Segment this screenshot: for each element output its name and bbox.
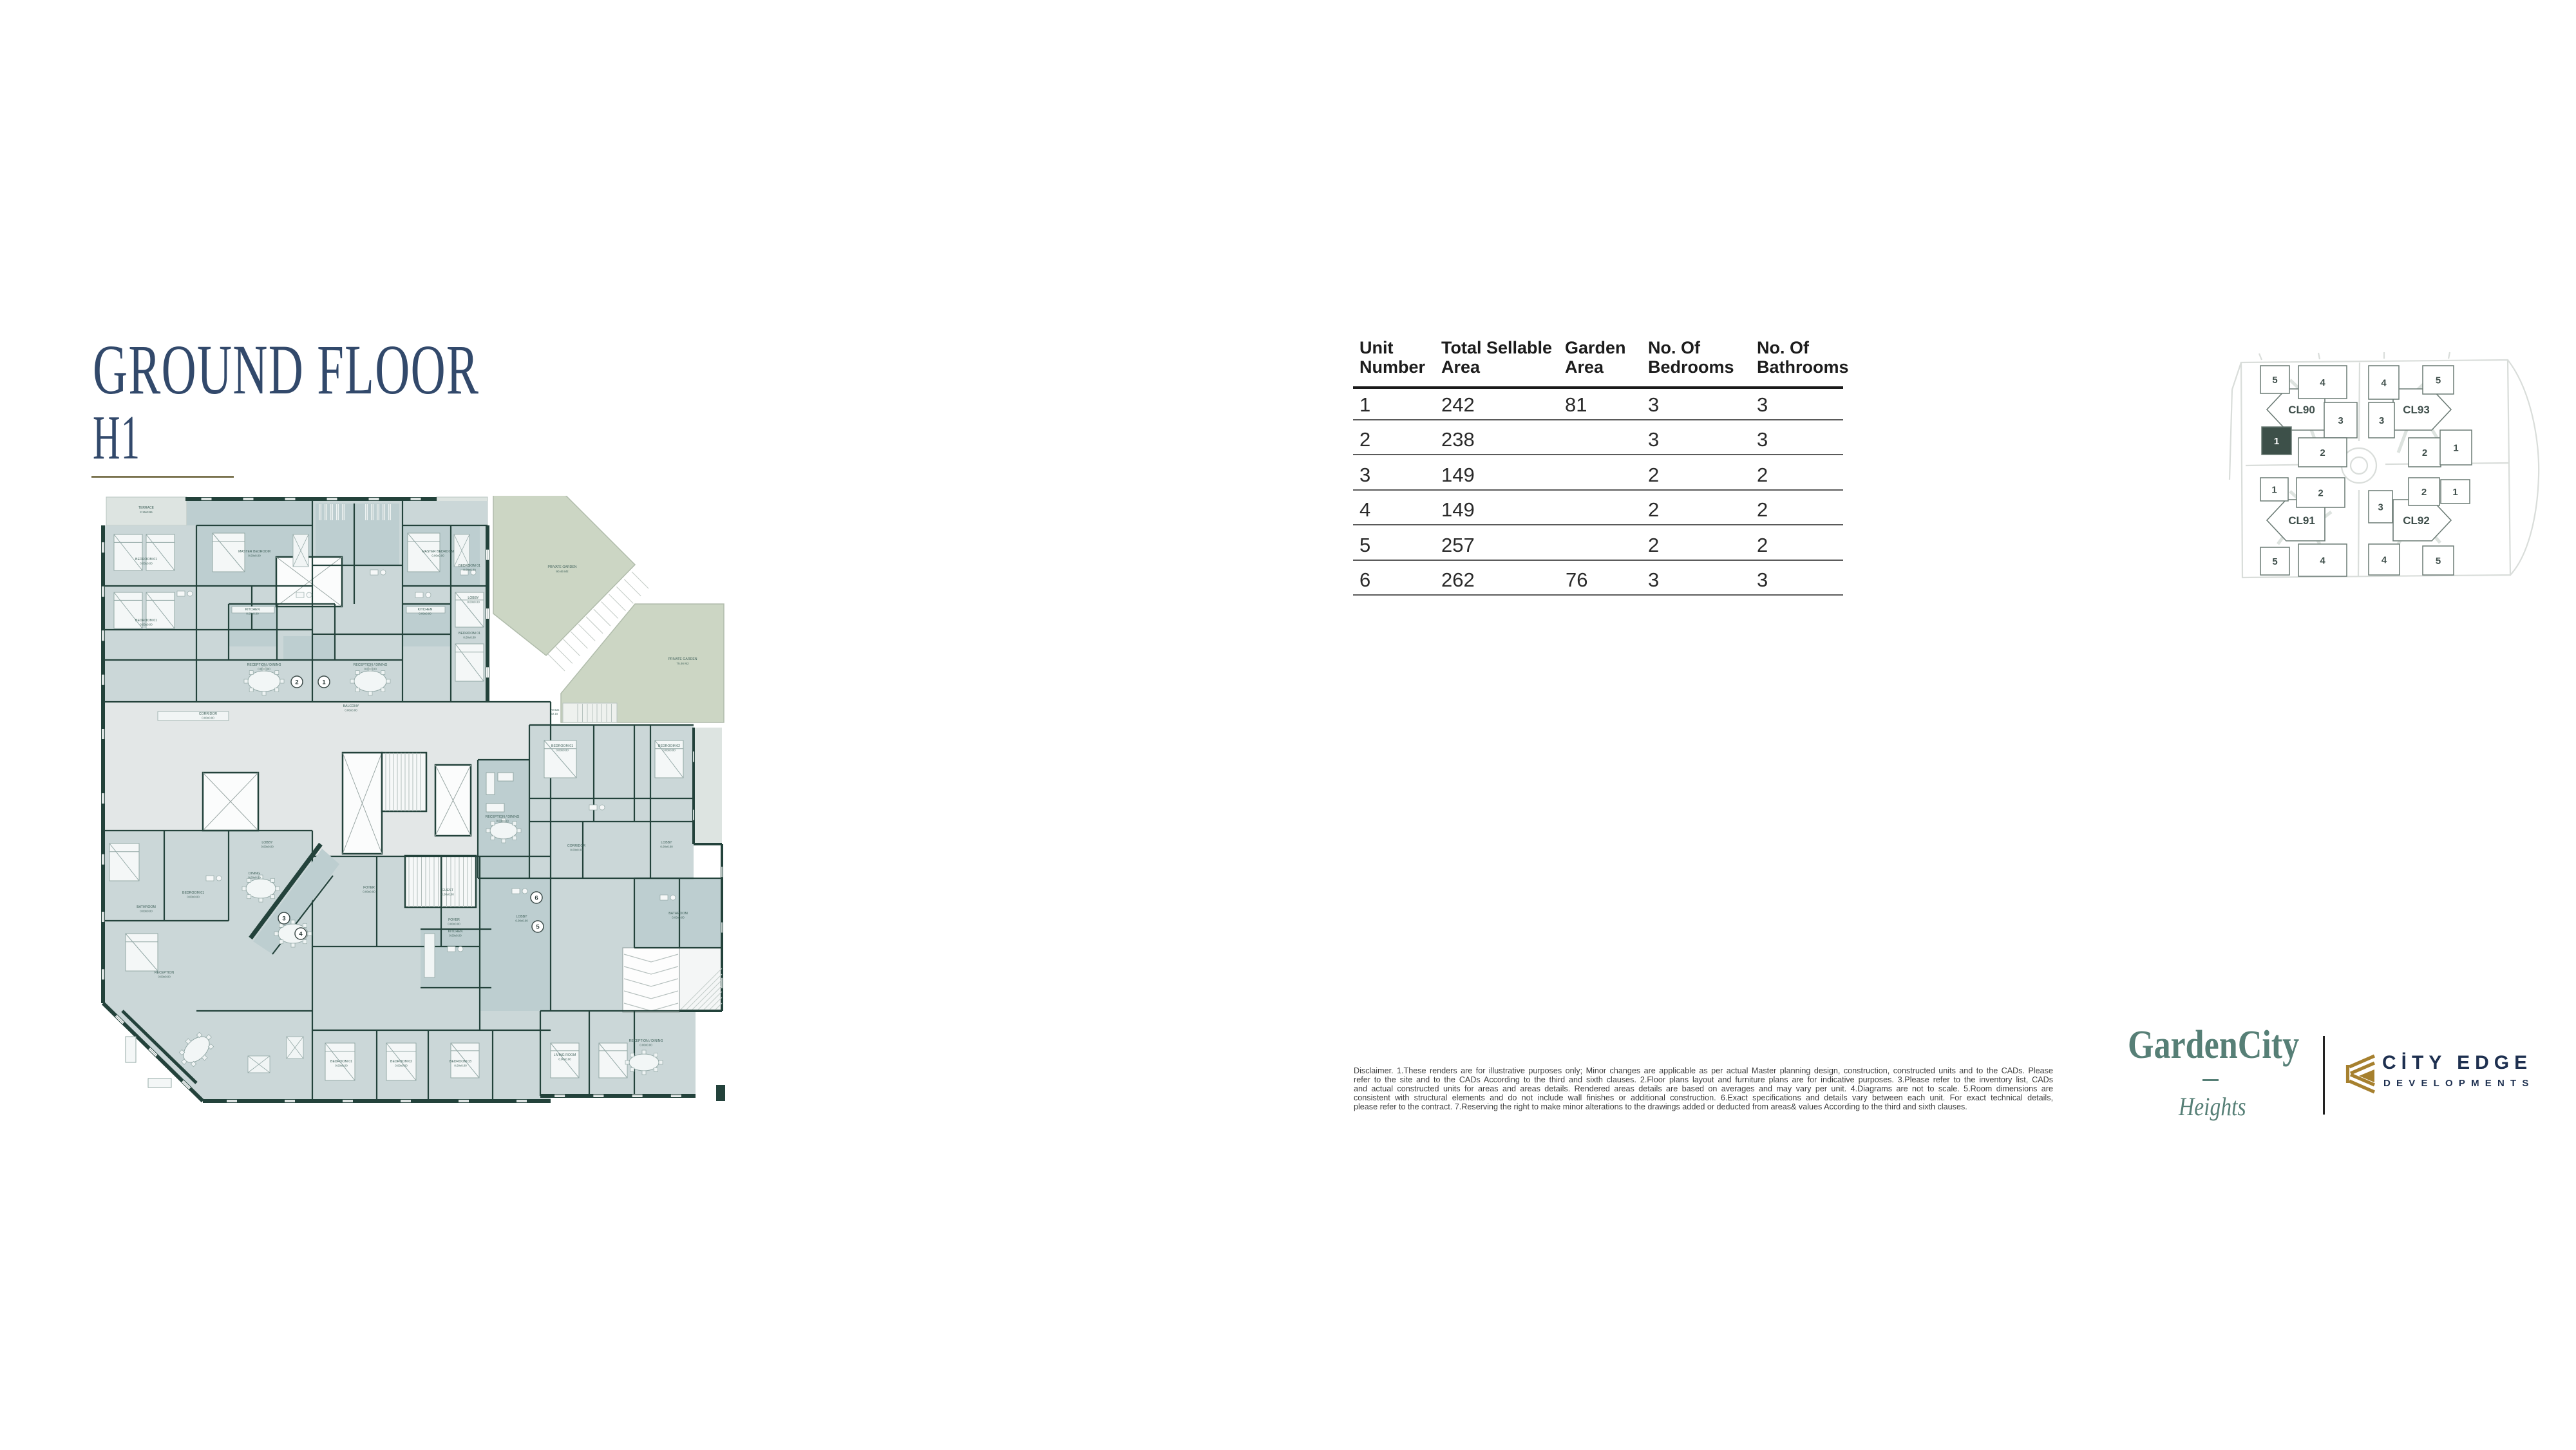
svg-text:BEDROOM 02: BEDROOM 02 — [390, 1060, 412, 1064]
svg-text:0.00x0.00: 0.00x0.00 — [449, 934, 462, 937]
svg-text:BEDROOM 01: BEDROOM 01 — [135, 558, 157, 561]
svg-text:CORRIDOR: CORRIDOR — [199, 712, 217, 716]
svg-text:0.00x0.00: 0.00x0.00 — [248, 554, 261, 558]
svg-text:0.00x0.00: 0.00x0.00 — [158, 975, 171, 979]
svg-text:BEDROOM 01: BEDROOM 01 — [459, 564, 480, 568]
svg-text:5: 5 — [2436, 375, 2441, 386]
svg-text:KITCHEN: KITCHEN — [418, 608, 433, 612]
svg-text:0.00x0.00: 0.00x0.00 — [419, 612, 431, 616]
svg-text:2: 2 — [295, 679, 298, 686]
svg-text:0.00x0.00: 0.00x0.00 — [454, 1064, 467, 1068]
svg-text:PRIVATE GARDEN: PRIVATE GARDEN — [668, 657, 697, 661]
svg-text:2: 2 — [2318, 488, 2323, 499]
svg-text:0.00x0.00: 0.00x0.00 — [556, 749, 569, 752]
svg-text:0.00x0.00: 0.00x0.00 — [140, 910, 153, 913]
svg-text:BEDROOM 02: BEDROOM 02 — [658, 744, 680, 748]
svg-text:BEDROOM 01: BEDROOM 01 — [330, 1060, 352, 1064]
svg-text:90.46 M2: 90.46 M2 — [556, 570, 569, 573]
svg-text:CL92: CL92 — [2403, 514, 2430, 527]
svg-text:CL90: CL90 — [2288, 404, 2315, 416]
svg-text:LOBBY: LOBBY — [516, 915, 527, 919]
svg-text:0.00x0.00: 0.00x0.00 — [140, 562, 153, 565]
svg-text:MASTER BEDROOM: MASTER BEDROOM — [422, 550, 454, 554]
svg-text:0.00x0.00: 0.00x0.00 — [441, 893, 454, 896]
svg-text:BATHROOM: BATHROOM — [668, 912, 688, 916]
svg-text:5: 5 — [2272, 556, 2277, 567]
svg-text:KITCHEN: KITCHEN — [448, 930, 463, 934]
svg-text:RECEPTION: RECEPTION — [155, 971, 175, 975]
svg-text:4: 4 — [299, 931, 303, 938]
svg-text:0.00x0.00: 0.00x0.00 — [463, 569, 476, 572]
svg-text:0.00x0.00: 0.00x0.00 — [558, 1058, 571, 1061]
svg-text:6: 6 — [535, 895, 538, 902]
svg-text:5: 5 — [536, 924, 540, 931]
svg-text:0.00x0.00: 0.00x0.00 — [515, 919, 528, 923]
svg-text:0.00x0.00: 0.00x0.00 — [448, 923, 460, 926]
svg-text:0.00x0.00: 0.00x0.00 — [639, 1044, 652, 1047]
svg-text:DINING: DINING — [249, 872, 260, 876]
svg-text:LOBBY: LOBBY — [661, 841, 672, 845]
svg-text:0.00x0.00: 0.00x0.00 — [345, 709, 357, 712]
svg-text:75.46 M2: 75.46 M2 — [676, 662, 689, 665]
svg-text:RECEPTION / DINING: RECEPTION / DINING — [629, 1039, 663, 1043]
svg-text:KITCHEN: KITCHEN — [245, 608, 260, 612]
svg-text:0.00x0.00: 0.00x0.00 — [202, 717, 214, 720]
svg-text:0.00x0.00: 0.00x0.00 — [663, 749, 676, 752]
svg-text:4: 4 — [2381, 378, 2387, 389]
svg-text:PRIVATE GARDEN: PRIVATE GARDEN — [547, 565, 576, 569]
svg-text:2: 2 — [2421, 487, 2427, 498]
svg-text:BEDROOM 01: BEDROOM 01 — [182, 891, 204, 895]
svg-text:0.00x0.00: 0.00x0.00 — [672, 916, 685, 919]
svg-text:BALCONY: BALCONY — [343, 704, 359, 708]
svg-text:5: 5 — [2436, 556, 2441, 567]
svg-text:1: 1 — [322, 679, 326, 686]
svg-text:0.00x0.00: 0.00x0.00 — [261, 845, 274, 849]
svg-text:CL93: CL93 — [2403, 404, 2430, 416]
svg-text:0.00x0.00: 0.00x0.00 — [363, 890, 375, 894]
svg-text:1: 1 — [2452, 487, 2458, 498]
svg-text:3: 3 — [2378, 502, 2383, 513]
svg-text:2: 2 — [2422, 447, 2427, 458]
svg-text:FOYER: FOYER — [363, 886, 375, 890]
svg-text:BEDROOM 01: BEDROOM 01 — [551, 744, 573, 748]
svg-text:CORRIDOR: CORRIDOR — [567, 844, 585, 848]
svg-text:BEDROOM 03: BEDROOM 03 — [450, 1060, 471, 1064]
svg-text:LIVING ROOM: LIVING ROOM — [554, 1053, 576, 1057]
svg-text:2: 2 — [2320, 447, 2325, 458]
svg-text:0.00x0.00: 0.00x0.00 — [246, 612, 259, 616]
svg-text:0.00x0.00: 0.00x0.00 — [187, 896, 200, 899]
svg-text:RECEPTION / DINING: RECEPTION / DINING — [354, 663, 388, 667]
svg-text:GUEST: GUEST — [442, 889, 454, 892]
svg-text:4: 4 — [2382, 555, 2387, 566]
svg-text:0.00x0.00: 0.00x0.00 — [395, 1064, 408, 1068]
svg-text:BEDROOM 01: BEDROOM 01 — [459, 632, 480, 636]
svg-text:0.00x0.00: 0.00x0.00 — [335, 1064, 348, 1068]
svg-text:BATHROOM: BATHROOM — [137, 905, 156, 909]
svg-text:BEDROOM 01: BEDROOM 01 — [135, 619, 157, 623]
svg-text:0.00x0.00: 0.00x0.00 — [463, 636, 476, 639]
svg-text:0.00x0.00: 0.00x0.00 — [570, 849, 583, 852]
svg-text:1: 1 — [2271, 485, 2277, 496]
svg-text:LOBBY: LOBBY — [261, 841, 273, 845]
svg-text:TERRACE: TERRACE — [138, 506, 155, 510]
svg-text:0.00x0.00: 0.00x0.00 — [660, 845, 673, 849]
svg-text:0.00x0.00: 0.00x0.00 — [496, 820, 509, 823]
svg-text:0.00x0.00: 0.00x0.00 — [248, 876, 261, 880]
svg-text:MASTER BEDROOM: MASTER BEDROOM — [238, 550, 270, 554]
svg-text:3: 3 — [282, 916, 285, 923]
svg-text:3: 3 — [2379, 415, 2384, 426]
svg-text:4: 4 — [2320, 556, 2325, 567]
svg-text:0.00x0.00: 0.00x0.00 — [364, 668, 377, 671]
svg-text:1: 1 — [2274, 436, 2279, 447]
svg-text:2.15x3.95: 2.15x3.95 — [140, 511, 153, 514]
svg-text:0.00x0.00: 0.00x0.00 — [140, 623, 153, 626]
svg-text:4: 4 — [2320, 377, 2325, 388]
svg-text:0.00x0.00: 0.00x0.00 — [467, 601, 480, 604]
svg-text:RECEPTION / DINING: RECEPTION / DINING — [486, 815, 520, 819]
svg-text:5: 5 — [2272, 375, 2277, 386]
svg-text:RECEPTION / DINING: RECEPTION / DINING — [247, 663, 281, 667]
svg-text:0.00x0.00: 0.00x0.00 — [431, 554, 444, 558]
svg-text:1: 1 — [2453, 443, 2458, 454]
svg-text:LOBBY: LOBBY — [468, 596, 479, 600]
svg-text:CL91: CL91 — [2288, 514, 2315, 527]
svg-text:3: 3 — [2338, 415, 2343, 426]
svg-text:FOYER: FOYER — [448, 918, 460, 922]
svg-text:0.00x0.00: 0.00x0.00 — [258, 668, 270, 671]
